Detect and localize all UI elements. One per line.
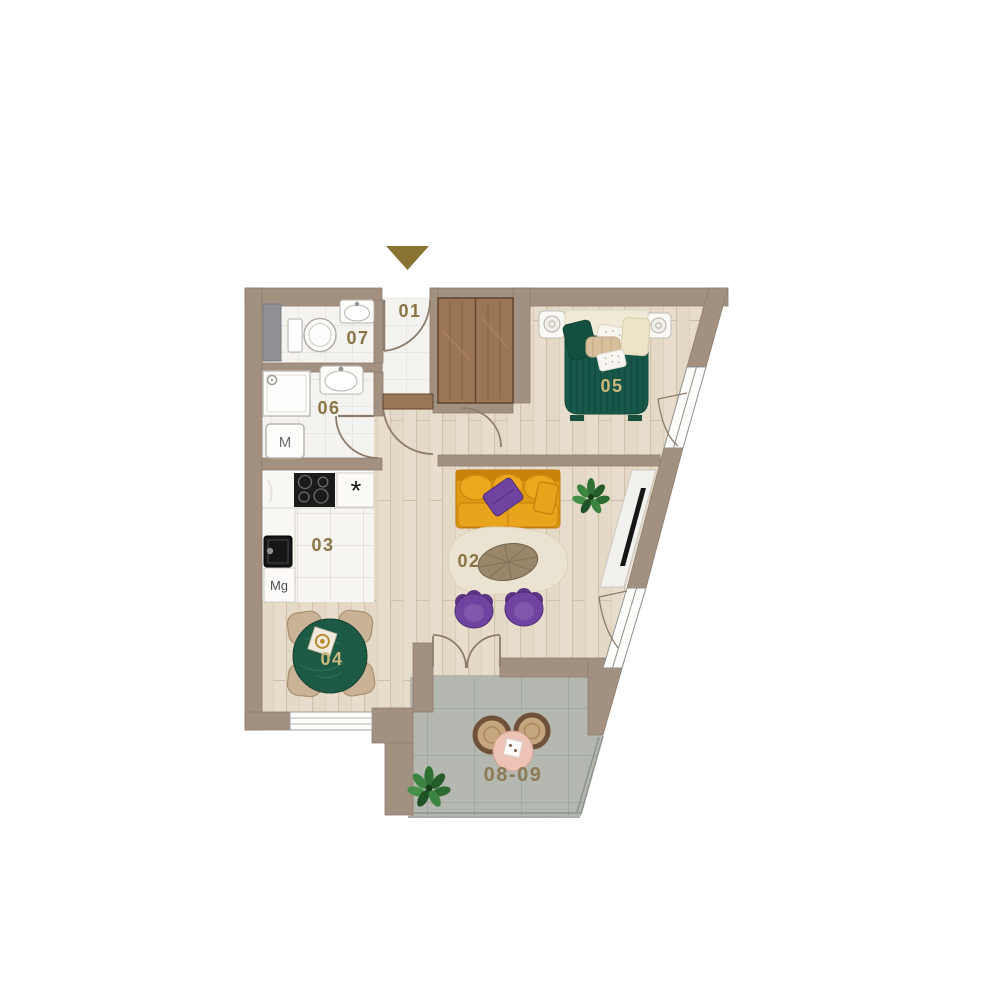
room-label-01: 01 [398, 301, 421, 321]
wall-bathroom-kitchen [262, 458, 382, 470]
room-label-02: 02 [457, 551, 480, 571]
toilet-tank [288, 319, 302, 352]
wc-sink-faucet [355, 302, 359, 306]
wc-sink-basin [345, 305, 370, 321]
bed-foot-left [570, 415, 584, 421]
wall-bottom-block [372, 708, 413, 743]
armchair-left [455, 590, 493, 628]
wall-wc-right [374, 300, 383, 363]
fridge-mg-label: Mg [270, 578, 288, 593]
wall-bathroom-right [374, 372, 383, 416]
floor-plan-page: M * Mg [0, 0, 1000, 1000]
room-label-04: 04 [320, 649, 343, 669]
hall-door-leaf-panel [383, 394, 433, 409]
dining-window [290, 712, 372, 730]
bed-pillow-cream [621, 317, 651, 356]
north-arrow-icon [386, 246, 429, 270]
room-label-08-09: 08-09 [484, 764, 543, 786]
wall-living-balcony [500, 658, 588, 677]
shower [263, 371, 310, 416]
wall-balcony-left [385, 743, 413, 815]
bathroom-sink-basin [325, 371, 357, 391]
balcony-table-tray [504, 739, 523, 758]
wall-dining-balcony [413, 643, 433, 712]
shower-head-dot [271, 379, 273, 381]
wall-bottom-left [245, 712, 290, 730]
lamp-right-icon [651, 318, 666, 333]
room-label-05: 05 [600, 376, 623, 396]
room-label-06: 06 [317, 398, 340, 418]
wall-balcony-right-block [588, 658, 625, 735]
room-label-07: 07 [346, 328, 369, 348]
bathroom-sink-faucet [339, 367, 344, 372]
kitchen-floor [295, 508, 374, 602]
wall-bedroom-living [438, 455, 660, 466]
armchair-right [505, 588, 543, 626]
wall-left [245, 288, 262, 730]
wall-entry-closet [430, 288, 438, 403]
duct-shaft [263, 304, 281, 361]
bed-foot-right [628, 415, 642, 421]
wall-closet-bedroom [513, 288, 530, 403]
room-label-03: 03 [311, 535, 334, 555]
dishwasher-star-label: * [351, 475, 362, 506]
floor-plan-svg: M * Mg [0, 0, 1000, 1000]
lamp-left-icon [544, 316, 560, 332]
washing-machine-label: M [279, 434, 292, 451]
kitchen-sink-faucet [267, 548, 273, 554]
